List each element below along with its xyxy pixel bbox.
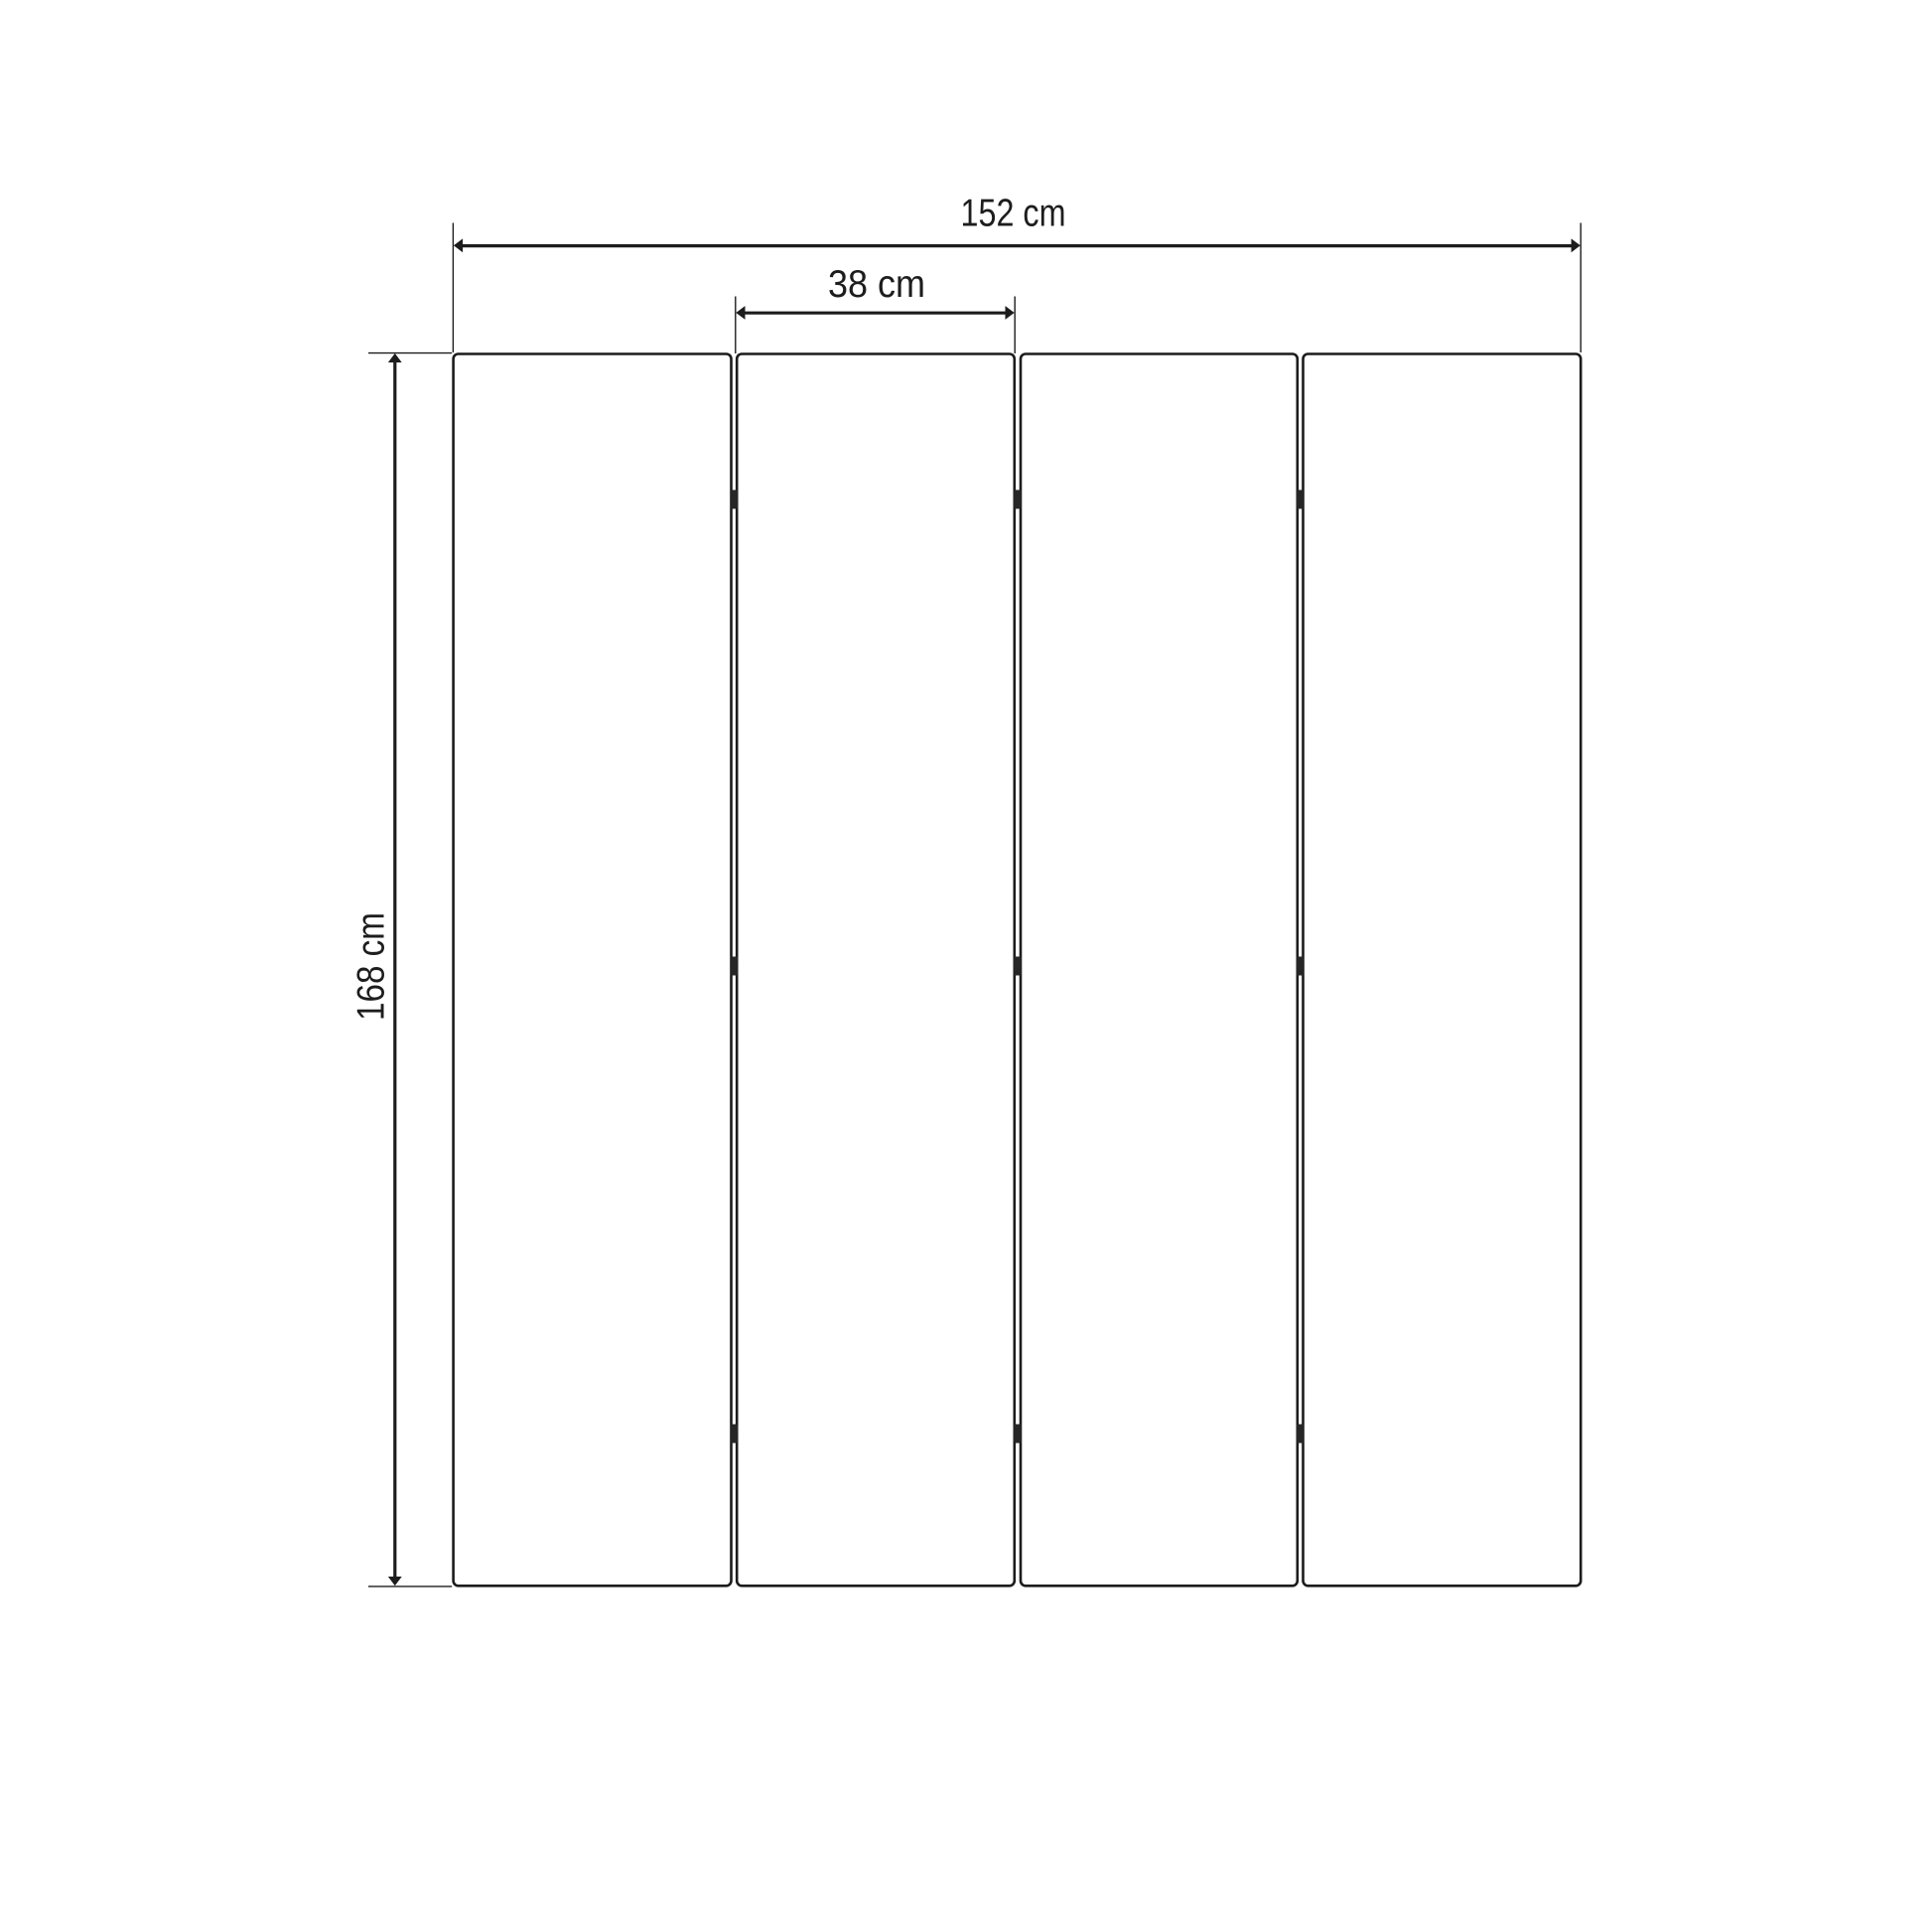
svg-text:168 cm: 168 cm <box>350 912 393 1021</box>
svg-text:38 cm: 38 cm <box>828 263 925 306</box>
svg-text:152 cm: 152 cm <box>961 193 1066 235</box>
